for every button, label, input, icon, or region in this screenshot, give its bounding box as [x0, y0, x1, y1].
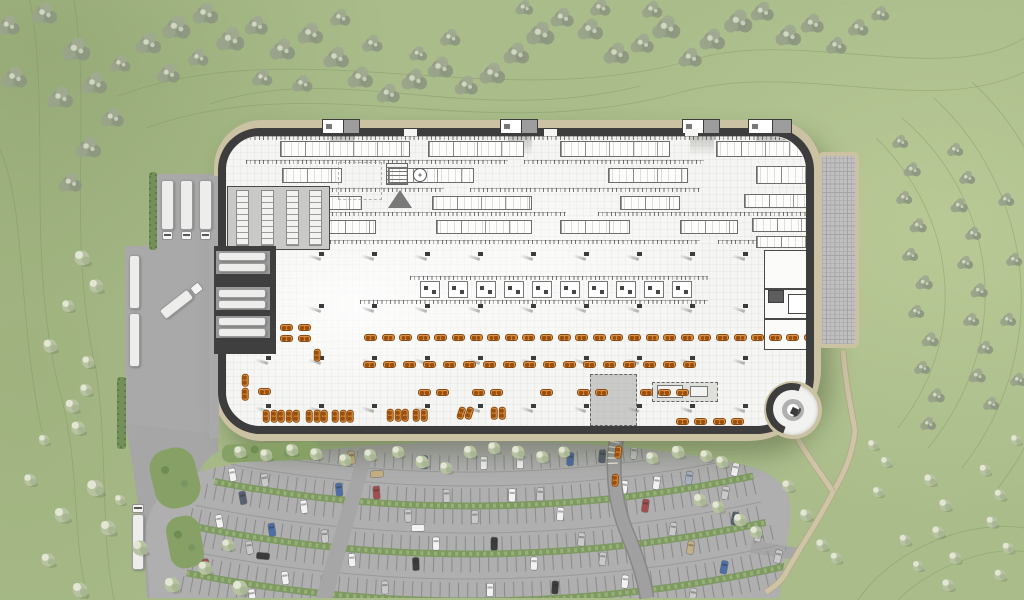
truck-trailer	[159, 288, 195, 320]
cab-windshield	[202, 234, 209, 236]
site-plan	[0, 0, 1024, 600]
truck-trailer	[129, 255, 140, 309]
truck-turning	[159, 280, 206, 320]
truck-cab	[162, 231, 173, 240]
truck-cab	[132, 504, 144, 513]
factory-car-driving	[615, 445, 623, 459]
car-seat	[613, 476, 617, 480]
cab-windshield	[134, 507, 142, 509]
car-seat	[616, 453, 620, 457]
truck-trailer	[129, 313, 140, 367]
truck-cab	[200, 231, 211, 240]
truck-trailer	[132, 514, 144, 570]
factory-car-driving	[612, 474, 619, 487]
car-seat	[616, 448, 620, 452]
truck-cab	[181, 231, 192, 240]
truck-trailer	[161, 180, 174, 230]
car-seat	[613, 481, 617, 485]
cab-windshield	[183, 234, 190, 236]
truck-trailer	[180, 180, 193, 230]
vehicles-layer	[0, 0, 1024, 600]
cab-windshield	[164, 234, 171, 236]
truck-trailer	[199, 180, 212, 230]
